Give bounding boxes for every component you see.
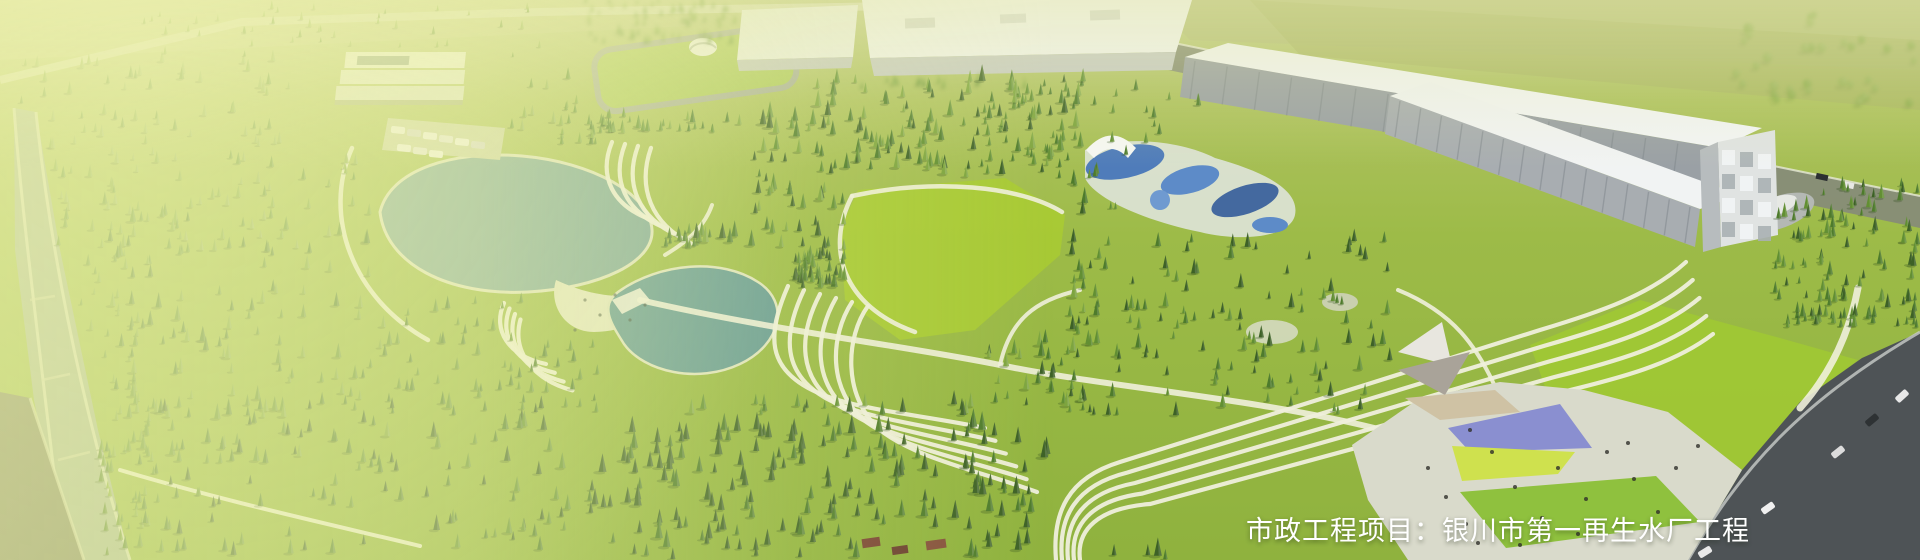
hero-banner: 市政工程项目：银川市第一再生水厂工程: [0, 0, 1920, 560]
project-caption: 市政工程项目：银川市第一再生水厂工程: [1246, 516, 1750, 547]
aerial-site-rendering: [0, 0, 1920, 560]
sunlight-wash: [0, 0, 1920, 560]
